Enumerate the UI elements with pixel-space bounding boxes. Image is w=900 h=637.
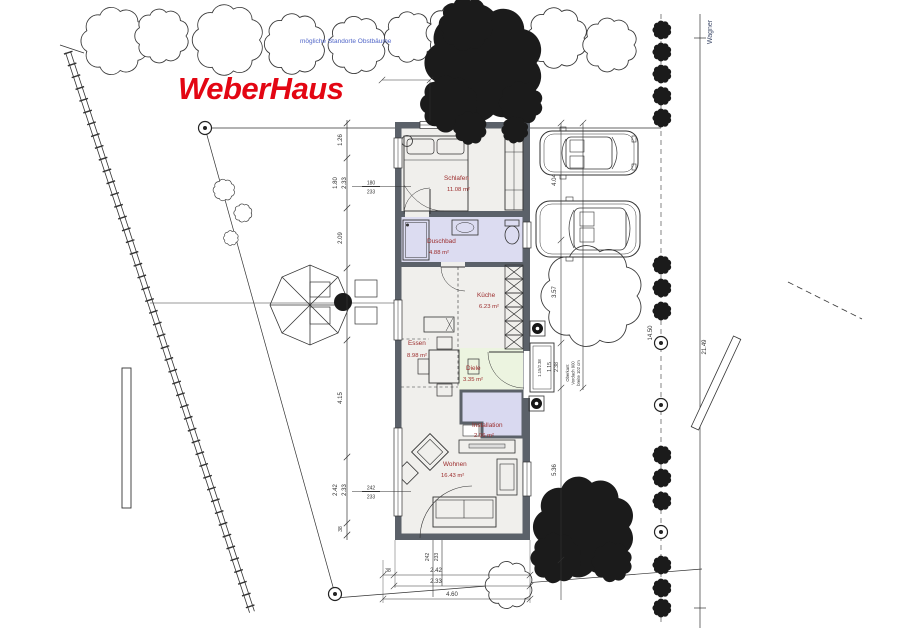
dim-right-4: 5.36 bbox=[552, 464, 558, 476]
dim-left-7: 38 bbox=[338, 526, 344, 532]
room-label-essen-area: 8.98 m² bbox=[407, 353, 427, 359]
dim-site-inner: 14.50 bbox=[648, 325, 654, 341]
car-1 bbox=[540, 127, 638, 179]
site-plan-svg: WeberHaus mögliche Standorte Obstbäume W… bbox=[0, 0, 900, 637]
dim-right-0: 4.04 bbox=[552, 174, 558, 186]
outdoor-table bbox=[334, 293, 352, 311]
street-label: Wagner bbox=[707, 19, 714, 44]
room-label-wohnen-name: Wohnen bbox=[443, 461, 467, 468]
retaining-wall-bar bbox=[122, 368, 131, 508]
door-size-note: 1.15/2.38 bbox=[537, 359, 542, 377]
room-label-kueche-area: 6.23 m² bbox=[479, 304, 499, 310]
room-label-diele-area: 3.35 m² bbox=[463, 377, 483, 383]
dim-left-3: 2.09 bbox=[338, 232, 344, 244]
room-label-schlafen-area: 11.08 m² bbox=[447, 187, 470, 193]
small-tree-south bbox=[485, 561, 532, 608]
dim-bottom-total: 4.60 bbox=[446, 592, 458, 598]
room-label-essen-name: Essen bbox=[408, 340, 426, 347]
dim-left-6: 2.33 bbox=[342, 484, 348, 496]
room-label-diele-name: Diele bbox=[466, 365, 481, 372]
dim-left-5: 2.42 bbox=[333, 484, 339, 496]
hatched-bar bbox=[691, 336, 741, 430]
dim-right-3: 2.38 bbox=[554, 362, 560, 372]
dim-site-outer: 21.49 bbox=[702, 339, 708, 355]
small-plants bbox=[213, 179, 252, 245]
left-fence bbox=[66, 51, 255, 613]
room-label-duschbad-area: 4.88 m² bbox=[429, 250, 449, 256]
room-label-schlafen-name: Schlafen bbox=[444, 175, 469, 182]
room-label-wohnen-area: 16.43 m² bbox=[441, 473, 464, 479]
weberhaus-logo: WeberHaus bbox=[178, 71, 344, 106]
room-label-duschbad-name: Duschbad bbox=[427, 238, 456, 245]
dim-frac-bottom-a: 242 bbox=[367, 486, 376, 492]
dim-bottom-b: 2.33 bbox=[430, 579, 442, 585]
dim-bottom-vb: 233 bbox=[434, 553, 440, 562]
canopy-note-2: breite 102 cm bbox=[576, 360, 581, 386]
canopy-note-0: Oberkant bbox=[565, 364, 570, 382]
room-duschbad-floor bbox=[402, 217, 523, 262]
patio-umbrella bbox=[270, 265, 377, 345]
dim-bottom-va: 242 bbox=[425, 553, 431, 562]
survey-line bbox=[694, 14, 706, 628]
dim-frac-top-a: 180 bbox=[367, 181, 376, 187]
room-label-kueche-name: Küche bbox=[477, 292, 496, 299]
dim-right-1: 3.57 bbox=[552, 286, 558, 298]
car-2 bbox=[536, 197, 640, 261]
dim-left-2: 2.33 bbox=[342, 177, 348, 189]
site-plan-page: WeberHaus mögliche Standorte Obstbäume W… bbox=[0, 0, 900, 637]
dim-right-2: 1.15 bbox=[547, 362, 553, 372]
dim-bottom-a: 2.42 bbox=[430, 568, 442, 574]
dim-left-1: 1.80 bbox=[333, 177, 339, 189]
dim-bottom-offset: 38 bbox=[385, 568, 391, 574]
dim-frac-top-b: 233 bbox=[367, 190, 376, 196]
blue-note: mögliche Standorte Obstbäume bbox=[300, 38, 392, 45]
room-label-installation-name: Installation bbox=[472, 422, 503, 429]
dim-left-0: 1.26 bbox=[338, 134, 344, 146]
room-label-installation-area: 2.06 m² bbox=[474, 433, 494, 439]
canopy-note-1: Vordach 900 bbox=[571, 361, 576, 385]
dim-frac-bottom-b: 233 bbox=[367, 495, 376, 501]
dim-left-4: 4.15 bbox=[338, 392, 344, 404]
